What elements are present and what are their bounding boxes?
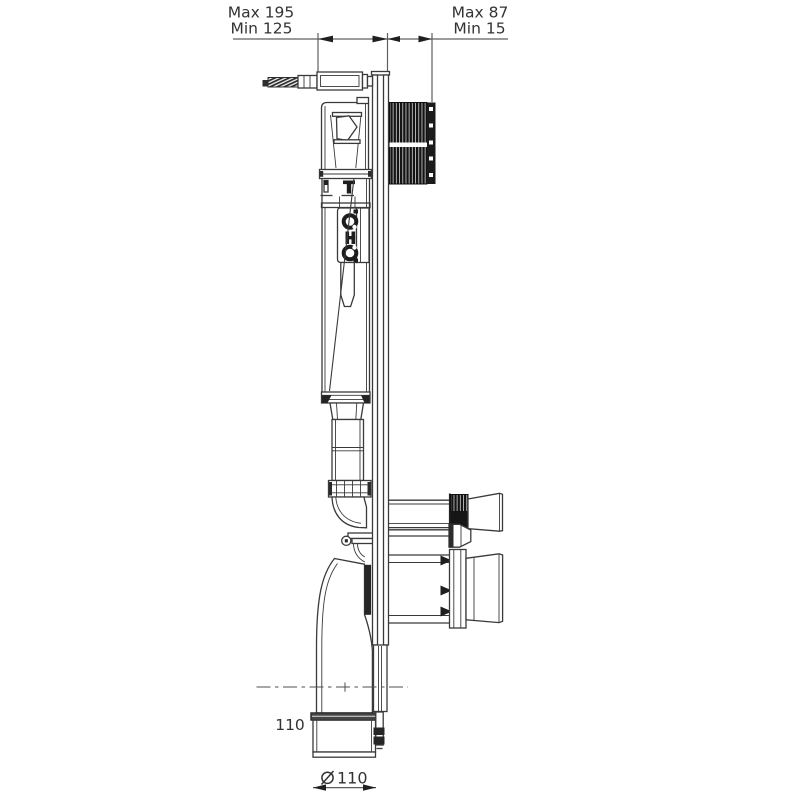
flush-valve-cartridge	[338, 208, 370, 263]
diameter-value-label: 110	[337, 769, 368, 788]
protection-box	[390, 103, 436, 185]
arrow-icon	[363, 784, 376, 790]
arrow-icon	[313, 784, 326, 790]
ribbed-seal	[451, 495, 469, 512]
arrow-icon	[318, 36, 333, 43]
dim-depth-min-label: Min 125	[230, 20, 292, 38]
foot-clamp	[374, 728, 385, 736]
outlet-flange	[450, 550, 467, 629]
waste-bend-and-soil-pipe	[311, 559, 378, 758]
arrow-icon	[388, 36, 401, 42]
rail-rear-bar	[384, 75, 389, 645]
flush-pipe-connector	[389, 493, 503, 547]
waste-cone-sleeve	[466, 554, 503, 623]
valve-body	[317, 72, 363, 90]
dim-wall-min-label: Min 15	[453, 20, 505, 38]
cistern-tank	[320, 98, 372, 420]
inlet-thread-tip	[263, 80, 269, 87]
foot-clamp	[374, 737, 385, 745]
soil-pipe-socket	[313, 720, 376, 752]
flush-down-pipe	[329, 420, 372, 528]
frame-rail	[372, 72, 390, 749]
waste-outlet-connector	[389, 550, 503, 629]
pipe-mounting-bracket	[342, 533, 374, 562]
rail-front-bar	[373, 75, 378, 645]
filling-valve	[263, 72, 373, 90]
pipe-coupling	[329, 481, 372, 498]
diameter-symbol	[322, 771, 334, 785]
waste-bend-elbow	[317, 559, 373, 714]
flush-elbow	[332, 497, 367, 528]
drawing-svg: Max 195 Min 125 Max 87 Min 15	[0, 0, 800, 800]
technical-drawing-concealed-cistern: Max 195 Min 125 Max 87 Min 15	[0, 0, 800, 800]
flush-pipe-body	[332, 420, 364, 481]
arrow-icon	[373, 36, 388, 43]
tank-outlet-neck	[330, 403, 364, 420]
inlet-threaded-rod	[268, 78, 298, 88]
arrow-icon	[419, 36, 433, 43]
overflow-tube	[341, 263, 355, 307]
rail-foot-leg	[374, 645, 388, 712]
pipe-offset-label: 110	[275, 716, 305, 734]
bend-flange-strip	[365, 565, 372, 615]
inlet-nut	[298, 76, 317, 89]
float-diaphragm	[337, 116, 358, 141]
pipe-offset-label-group: 110	[275, 716, 305, 734]
diameter-dimension: 110	[313, 769, 376, 791]
flush-cone-sleeve	[468, 493, 503, 531]
